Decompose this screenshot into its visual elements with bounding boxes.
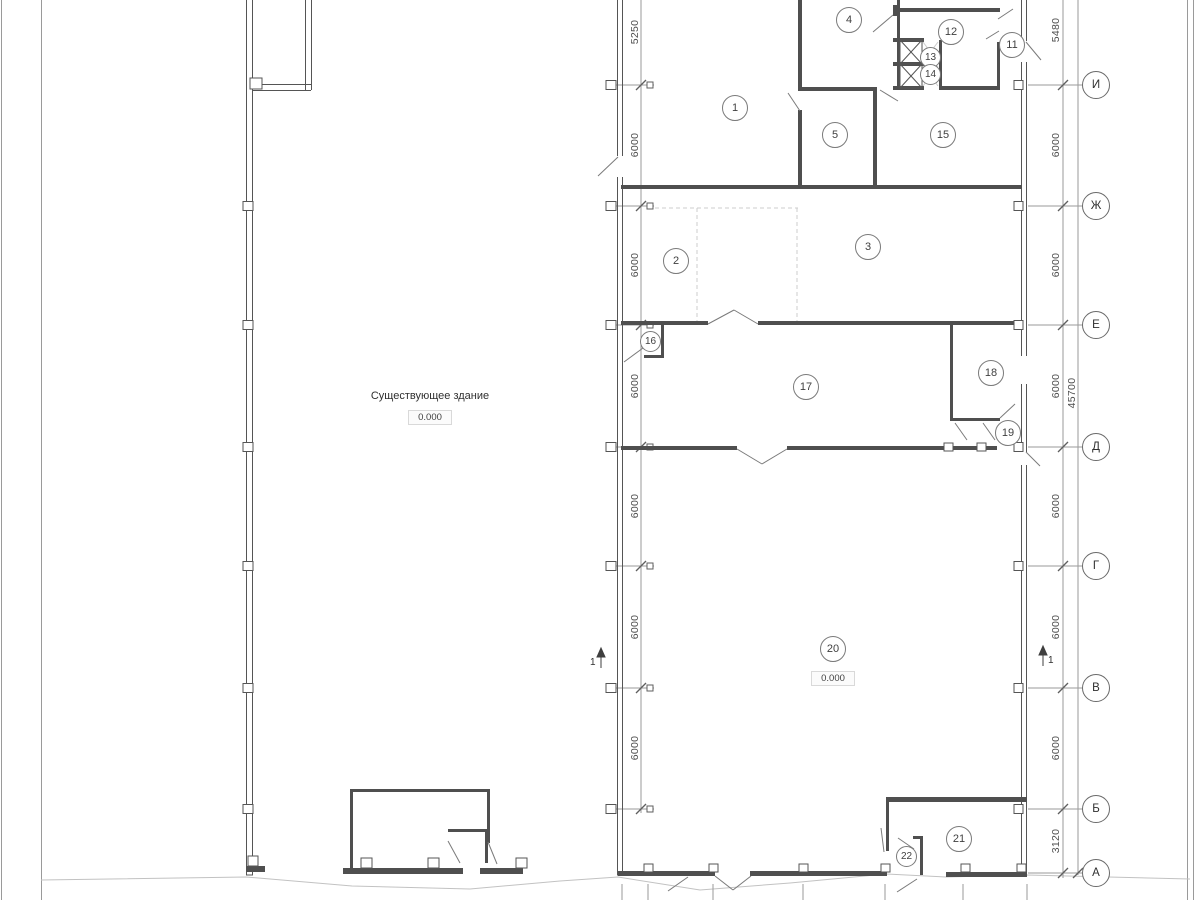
room-number-circle: 4 [836,7,862,33]
room-number-circle: 14 [920,64,941,85]
room-number-circle: 3 [855,234,881,260]
axis-circle: А [1082,859,1110,887]
section-label: 1 [1048,655,1054,666]
axis-circle: Д [1082,433,1110,461]
dim-label: 6000 [629,476,641,536]
room-number-circle: 12 [938,19,964,45]
plan-linework [0,0,1200,900]
floor-plan-sheet: 1 2 3 4 5 11 12 13 14 15 16 17 18 19 20 … [0,0,1200,900]
shaft-boxes [900,40,922,88]
dim-label: 6000 [1050,235,1062,295]
axis-circle: И [1082,71,1110,99]
dim-label: 6000 [629,718,641,778]
section-label: 1 [590,657,596,668]
room-number-circle: 19 [995,420,1021,446]
dim-label: 6000 [1050,597,1062,657]
existing-building-label: Существующее здание [345,390,515,402]
room-number-circle: 21 [946,826,972,852]
room-number-circle: 20 [820,636,846,662]
dim-label: 6000 [629,356,641,416]
axis-grid-stubs [622,884,1027,900]
elevation-badge: 0.000 [811,671,855,686]
dim-label: 5250 [629,2,641,62]
axis-circle: В [1082,674,1110,702]
room-number-circle: 17 [793,374,819,400]
room-number-circle: 16 [640,331,661,352]
dim-label: 6000 [629,115,641,175]
dim-label: 6000 [629,235,641,295]
room-number-circle: 18 [978,360,1004,386]
dim-label: 6000 [1050,476,1062,536]
total-dim-label: 45700 [1066,363,1078,423]
room-number-circle: 2 [663,248,689,274]
dim-label: 6000 [629,597,641,657]
room-number-circle: 5 [822,122,848,148]
axis-circle: Б [1082,795,1110,823]
dim-label: 6000 [1050,718,1062,778]
dim-label: 3120 [1050,811,1062,871]
axis-circle: Г [1082,552,1110,580]
room-number-circle: 22 [896,846,917,867]
axis-circle: Ж [1082,192,1110,220]
dimension-ticks [636,80,1083,878]
room-number-circle: 11 [999,32,1025,58]
room-number-circle: 1 [722,95,748,121]
dim-label: 6000 [1050,115,1062,175]
dim-label: 6000 [1050,356,1062,416]
dim-label: 5480 [1050,0,1062,60]
axis-circle: Е [1082,311,1110,339]
elevation-badge: 0.000 [408,410,452,425]
room-number-circle: 15 [930,122,956,148]
